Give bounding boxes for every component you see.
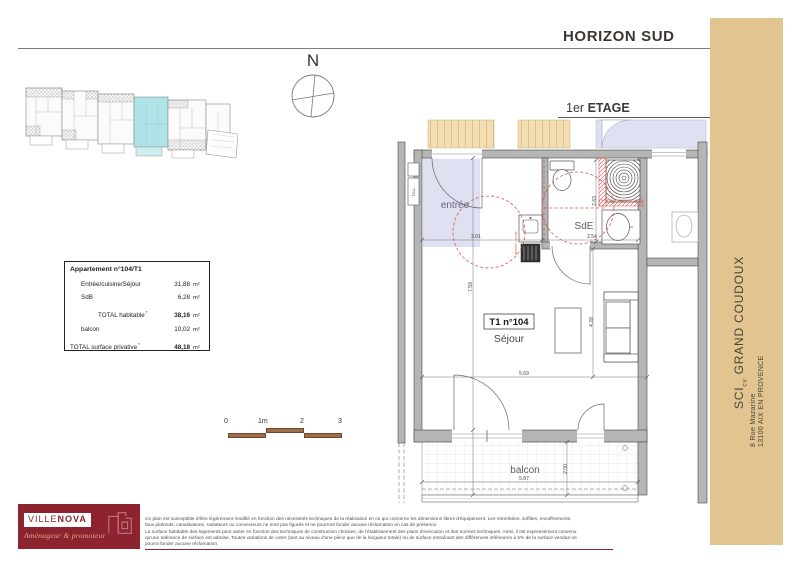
table-row-total-privative: TOTAL surface privative* 48,18 m² [70,342,204,355]
floor-plan: T.G.L. [392,112,712,507]
corridor-zone [518,120,570,148]
dim-balcon-width: 5.87 [519,476,529,482]
disclaimer-line: pourra fonder aucune réclamation. [145,542,625,548]
dim-sejour-height: 4.28 [589,317,595,327]
scale-segment [228,433,266,438]
north-arrow-icon: N [290,52,336,126]
project-title: HORIZON SUD [563,28,675,45]
shower-icon [606,160,640,202]
dim-sde-width: 2.54 [587,234,597,240]
brand-name: VILLENOVA [24,513,91,527]
room-label-sde: SdE [575,221,594,232]
scale-tick-1m: 1m [258,418,268,425]
dim-sde-depth: 2.63 [592,196,598,206]
scale-tick-2: 2 [300,418,304,425]
dim-depth: 7.59 [468,282,474,292]
coffee-table-icon [555,308,581,353]
brand-tagline: Aménageur & promoteur [24,531,106,540]
scale-segment [266,428,304,433]
highlighted-unit [134,97,168,147]
address-line-2: 13100 AIX EN PROVENCE [758,277,765,447]
scale-bar: 0 1m 2 3 [226,418,348,444]
table-row: SdB 6,28 m² [70,294,204,307]
svg-text:T.G.L.: T.G.L. [412,187,416,196]
table-row: Entrée/cuisine/Séjour 31,88 m² [70,281,204,294]
legal-disclaimer: Ce plan est susceptible d'être légèremen… [145,517,625,548]
scale-tick-3: 3 [338,418,342,425]
washbasin-icon [602,210,640,244]
table-title: Appartement n°104/T1 [70,266,204,273]
room-label-balcon: balcon [510,465,539,476]
company-name: SCIcv GRAND COUDOUX [732,277,748,409]
table-row-total-habitable: TOTAL habitable* 38,16 m² [70,310,204,323]
dim-balcon-depth: 2.00 [563,464,569,474]
room-label-entree: entrée [441,200,470,211]
scale-tick-0: 0 [224,418,228,425]
scale-segment [304,433,342,438]
plan-de-vente-sheet: HORIZON SUD 1er ETAGE plan de vente SCIc… [0,0,800,566]
table-row: balcon 10,02 m² [70,326,204,339]
unit-id-label: T1 n°104 [489,317,529,328]
electrical-box: T.G.L. [408,163,419,205]
corridor-zone [428,120,494,148]
buildings-icon [106,509,134,537]
address-line-1: 8 Rue Mazarine [750,277,757,447]
header-rule [18,48,783,49]
north-label: N [290,52,336,71]
compass-circle [290,71,336,121]
dim-entree-width: 3.01 [471,234,481,240]
room-label-sejour: Séjour [494,333,525,345]
sofa-icon [604,292,638,362]
kitchen-note: attente cuisine [514,231,518,255]
footer-rule [145,549,613,550]
developer-address-block: SCIcv GRAND COUDOUX 8 Rue Mazarine 13100… [732,277,776,447]
villenova-logo: VILLENOVA Aménageur & promoteur [18,504,140,549]
kitchenette-icon [519,215,542,262]
site-key-plan [22,76,238,160]
dim-sejour-width: 5.69 [519,371,529,377]
unit-surface-table: Appartement n°104/T1 Entrée/cuisine/Séjo… [64,261,210,351]
disclaimer-line: La surface habitable des logements peut … [145,530,625,536]
